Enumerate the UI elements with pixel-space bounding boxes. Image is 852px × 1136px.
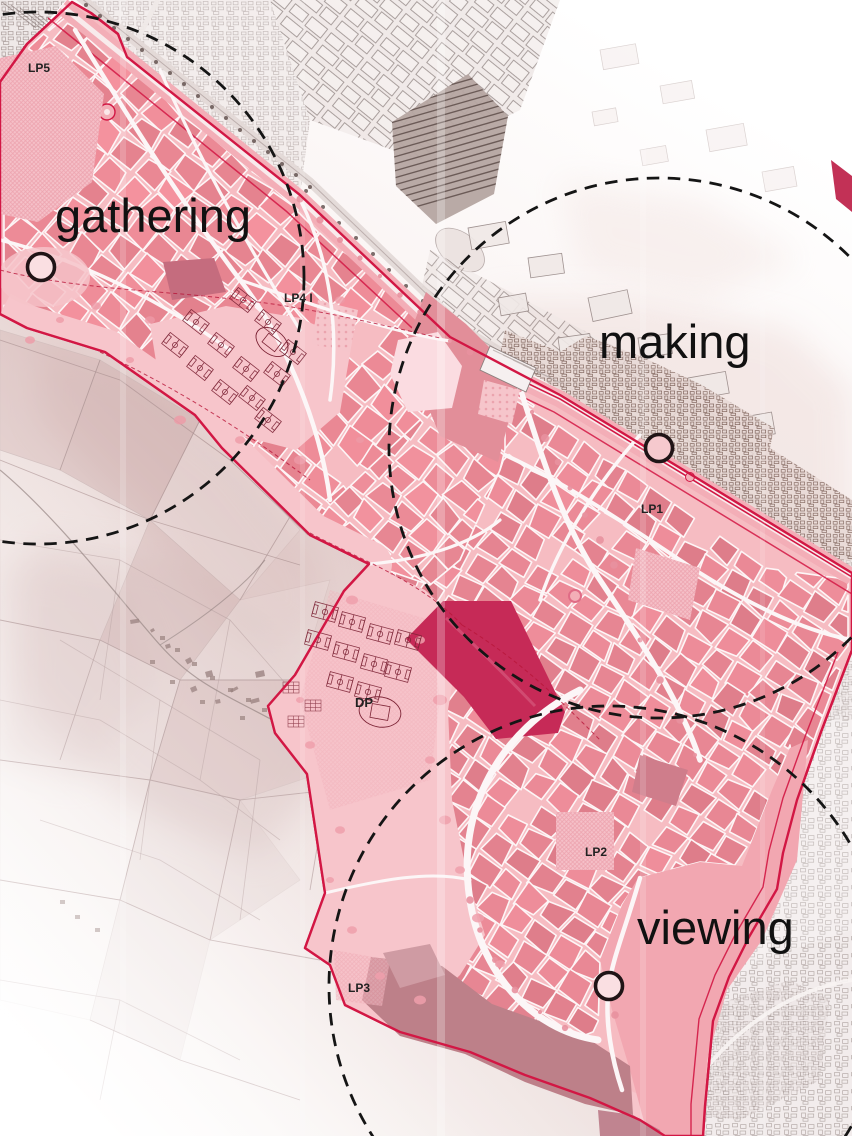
svg-text:LP4 I: LP4 I <box>284 291 313 305</box>
svg-text:gathering: gathering <box>55 189 251 242</box>
svg-text:LP1: LP1 <box>641 502 663 516</box>
svg-text:making: making <box>599 315 751 368</box>
svg-text:LP2: LP2 <box>585 845 607 859</box>
svg-text:LP5: LP5 <box>28 61 50 75</box>
svg-text:LP3: LP3 <box>348 981 370 995</box>
svg-text:DP: DP <box>355 695 373 710</box>
svg-text:viewing: viewing <box>637 901 794 954</box>
